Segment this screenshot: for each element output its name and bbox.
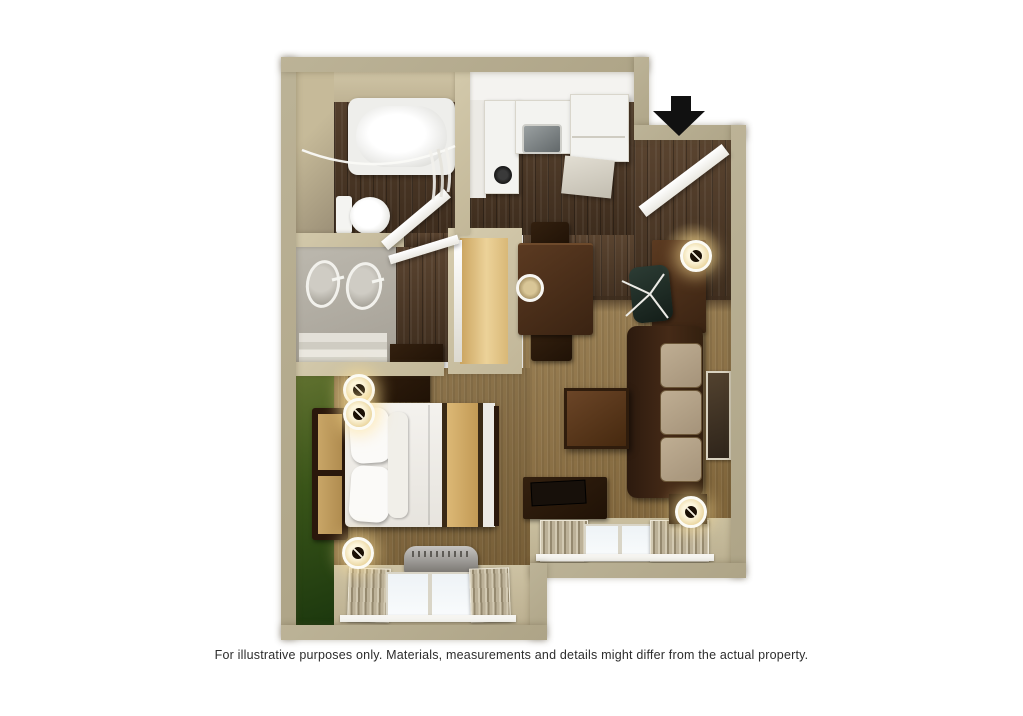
toilet-bowl: [350, 197, 390, 235]
bathroom-left-wall-face: [296, 72, 334, 243]
dining-chair-bottom: [531, 331, 572, 361]
bedroom-window-sill: [340, 615, 516, 622]
tv: [530, 480, 586, 507]
bathtub-basin: [356, 106, 447, 167]
pillow-bottom: [348, 465, 392, 524]
wall-left: [281, 57, 296, 640]
living-window-sill: [536, 554, 714, 561]
kitchen-sink: [522, 124, 562, 154]
closet-interior-shelf: [460, 238, 508, 364]
place-setting: [516, 274, 544, 302]
nightstand-lamp-2: [343, 398, 375, 430]
wall-art: [706, 371, 731, 460]
refrigerator: [570, 94, 629, 162]
bedroom-floor-lamp: [342, 537, 374, 569]
bed-runner: [447, 403, 478, 527]
headboard-panel-top: [318, 414, 342, 470]
desk-lamp: [680, 240, 712, 272]
wall-bath-kitchen: [455, 72, 470, 235]
office-chair: [628, 264, 674, 324]
ac-unit-vents: [412, 551, 470, 557]
sofa-cushion-2: [660, 390, 702, 435]
headboard-panel-bottom: [318, 476, 342, 534]
entry-arrow-head-icon: [653, 111, 705, 136]
floor-plan-image: For illustrative purposes only. Material…: [0, 0, 1023, 716]
bed-footboard: [494, 406, 499, 526]
coffee-table: [564, 388, 629, 449]
cooktop-burner: [494, 166, 512, 184]
pillow-inner-row: [388, 412, 408, 518]
wall-vanity-bedroom: [296, 362, 444, 376]
sofa-cushion-3: [660, 437, 702, 482]
sofa-cushion-1: [660, 343, 702, 388]
entry-arrow-icon: [671, 96, 691, 112]
duvet-seam: [428, 405, 430, 525]
wall-bedroom-bottom: [281, 625, 547, 640]
disclaimer-caption: For illustrative purposes only. Material…: [0, 648, 1023, 662]
refrigerator-seam: [572, 136, 625, 138]
wall-top: [281, 57, 649, 72]
wall-right: [731, 125, 746, 578]
closet-door: [454, 240, 462, 362]
end-table-lamp: [675, 496, 707, 528]
wall-living-bottom: [530, 563, 746, 578]
lower-cabinet: [561, 155, 615, 198]
vanity-towel-shelf: [299, 333, 387, 363]
